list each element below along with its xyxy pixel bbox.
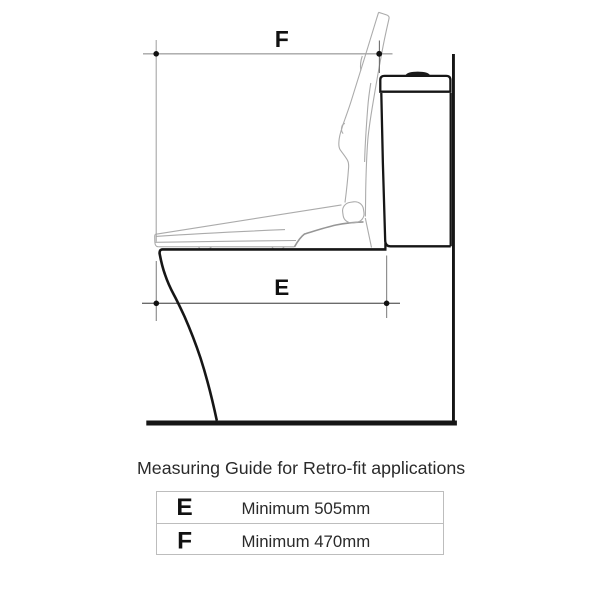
svg-text:Minimum 470mm: Minimum 470mm bbox=[242, 532, 371, 551]
svg-text:F: F bbox=[275, 26, 289, 52]
svg-text:E: E bbox=[274, 275, 289, 300]
svg-text:Minimum 505mm: Minimum 505mm bbox=[242, 499, 371, 518]
svg-text:E: E bbox=[176, 494, 192, 521]
svg-text:F: F bbox=[177, 527, 192, 554]
svg-text:Measuring Guide for Retro-fit: Measuring Guide for Retro-fit applicatio… bbox=[137, 458, 465, 478]
